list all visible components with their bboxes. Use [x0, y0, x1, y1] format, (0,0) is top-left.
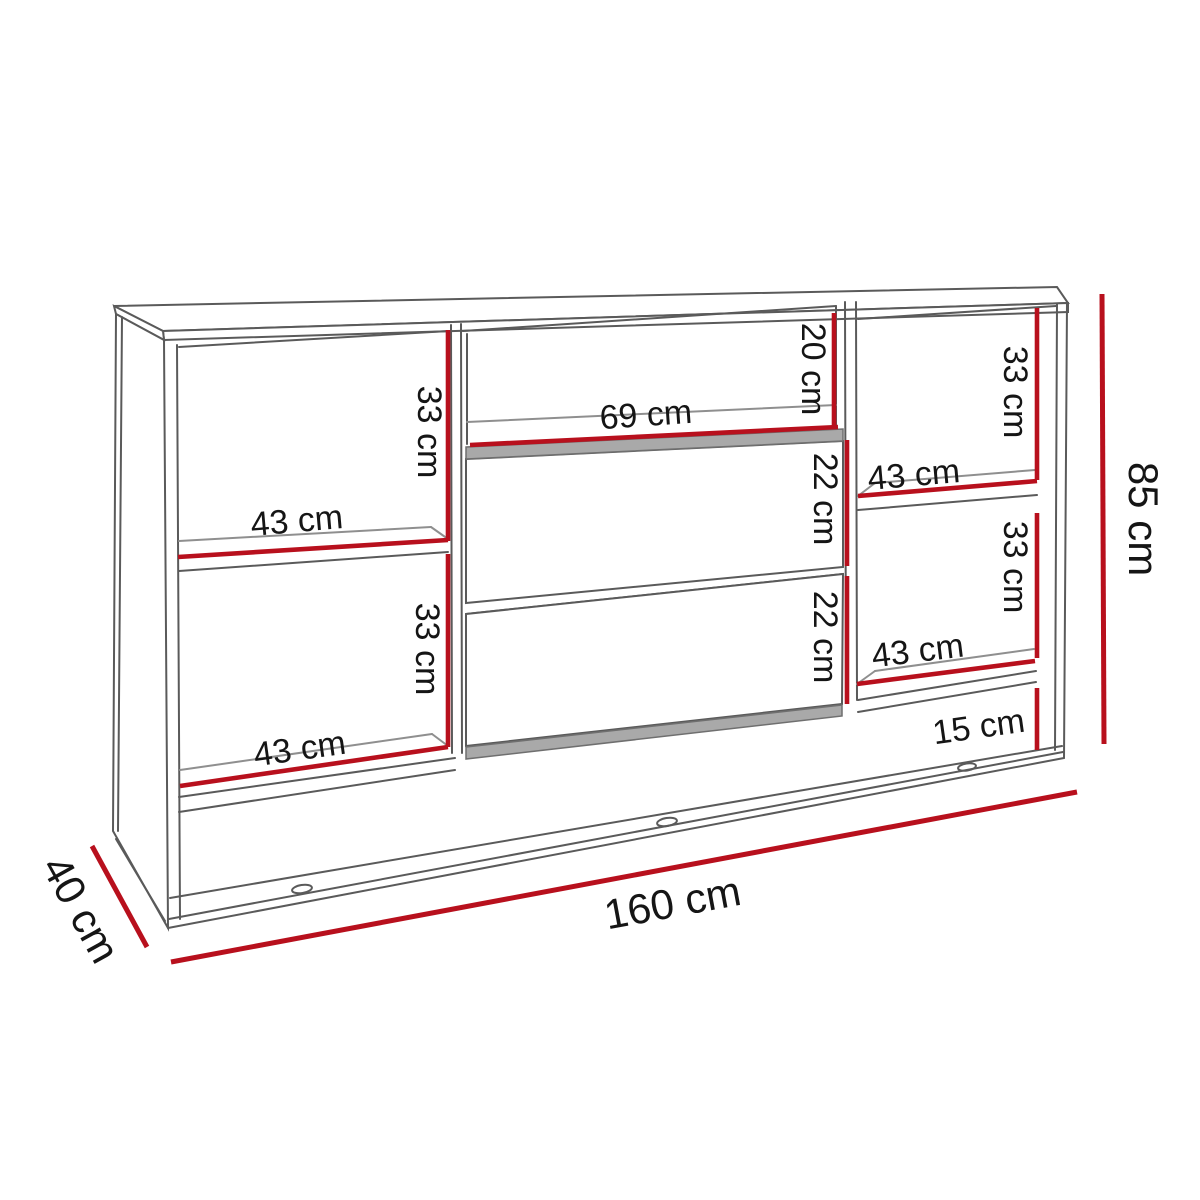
dim-label-left-upper-shelf: 43 cm — [249, 498, 345, 544]
dim-line-overall-height — [1102, 294, 1104, 744]
dim-label-drawer-top-height: 22 cm — [806, 453, 844, 546]
dim-label-niche-height: 20 cm — [794, 323, 832, 416]
drawer-top-front — [466, 441, 843, 603]
dim-label-right-upper-height: 33 cm — [996, 346, 1034, 439]
dim-label-left-lower-height: 33 cm — [408, 603, 446, 696]
dim-label-right-lower-shelf: 43 cm — [869, 626, 966, 675]
dim-label-overall-depth: 40 cm — [33, 848, 130, 971]
dim-label-niche-width: 69 cm — [598, 393, 693, 437]
diagram-page: 33 cm 43 cm 33 cm 43 cm 69 cm 20 cm 22 c… — [0, 0, 1200, 1200]
base-screw-hole — [656, 816, 677, 827]
dim-label-drawer-bottom-height: 22 cm — [806, 591, 844, 684]
cabinet-structure — [113, 287, 1068, 928]
dim-label-plinth-height: 15 cm — [930, 702, 1027, 753]
dim-label-overall-height: 85 cm — [1120, 462, 1167, 576]
furniture-dimension-diagram: 33 cm 43 cm 33 cm 43 cm 69 cm 20 cm 22 c… — [0, 0, 1200, 1200]
dim-label-left-lower-shelf: 43 cm — [251, 724, 348, 775]
dim-line-overall-width — [171, 792, 1077, 962]
dim-label-right-lower-height: 33 cm — [996, 521, 1034, 614]
dim-label-right-upper-shelf: 43 cm — [866, 452, 962, 498]
dim-label-left-upper-height: 33 cm — [410, 386, 448, 479]
